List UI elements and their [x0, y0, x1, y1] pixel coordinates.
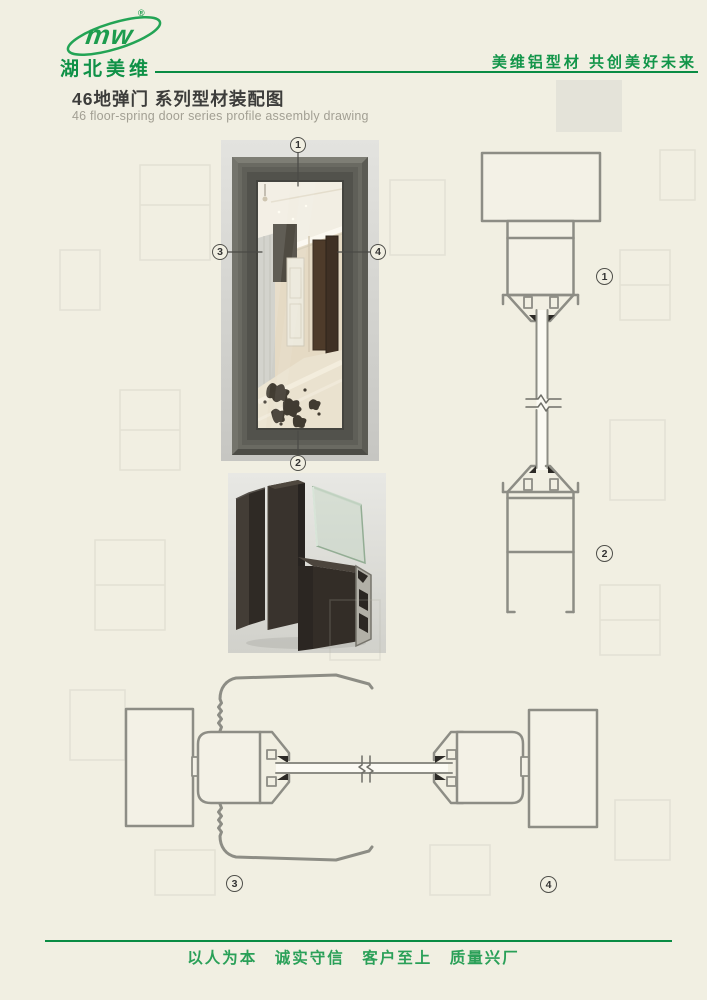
section-3-drawing — [126, 675, 372, 860]
callout-1: 1 — [290, 137, 306, 153]
page-title: 46地弹门 系列型材装配图 — [72, 86, 284, 111]
company-name: 湖北美维 — [60, 54, 152, 81]
section-label-3: 3 — [226, 875, 243, 892]
callout-4: 4 — [370, 244, 386, 260]
scan-shadow-artifact — [556, 80, 622, 132]
callout-2: 2 — [290, 455, 306, 471]
footer-rule — [45, 940, 672, 942]
section-4-drawing — [434, 710, 597, 827]
gasket — [548, 466, 555, 473]
gasket — [529, 466, 536, 473]
render-jamb-profile — [236, 488, 265, 630]
callout-3: 3 — [212, 244, 228, 260]
glass-horizontal — [276, 756, 452, 782]
render-rail-profile — [298, 557, 371, 651]
brand-logo: mw ® 湖北美维 — [58, 6, 208, 86]
glass-vertical — [526, 310, 561, 470]
gasket — [435, 773, 446, 780]
section-label-4: 4 — [540, 876, 557, 893]
door-photo — [221, 140, 379, 461]
gasket — [548, 315, 555, 322]
door-photo-scene — [258, 182, 342, 428]
section-1-drawing — [482, 153, 600, 321]
gasket — [277, 756, 288, 763]
gasket — [435, 756, 446, 763]
assembly-render — [228, 473, 386, 653]
registered-trademark: ® — [138, 8, 145, 18]
section-label-1: 1 — [596, 268, 613, 285]
header-slogan: 美维铝型材 共创美好未来 — [492, 51, 697, 72]
logo-text: mw — [84, 20, 135, 51]
gasket — [277, 773, 288, 780]
section-2-drawing — [503, 466, 578, 612]
catalog-page: mw ® 湖北美维 美维铝型材 共创美好未来 46地弹门 系列型材装配图 46 … — [0, 0, 707, 1000]
gasket — [529, 315, 536, 322]
page-subtitle: 46 floor-spring door series profile asse… — [72, 109, 369, 123]
footer-motto: 以人为本 诚实守信 客户至上 质量兴厂 — [0, 946, 707, 968]
section-label-2: 2 — [596, 545, 613, 562]
